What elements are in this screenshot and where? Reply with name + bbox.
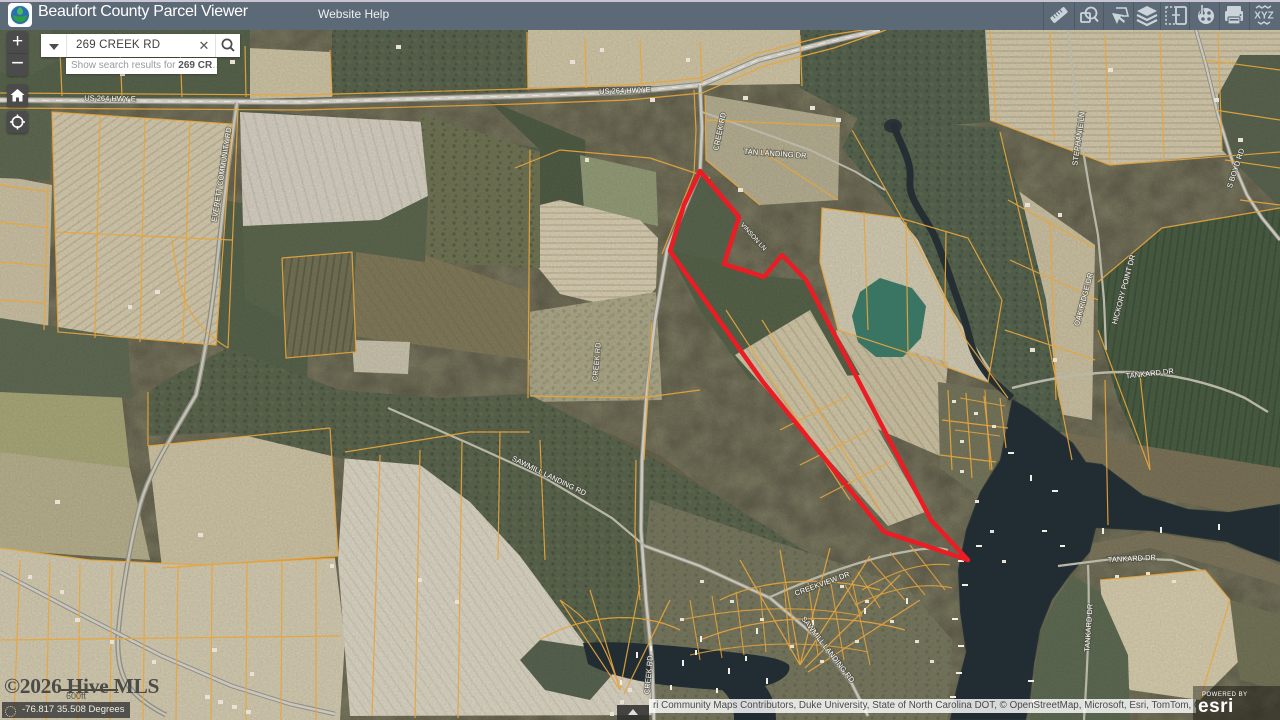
svg-text:US 264 HWY E: US 264 HWY E: [599, 85, 651, 96]
svg-text:XYZ: XYZ: [1254, 11, 1273, 22]
svg-text:US 264 HWY E: US 264 HWY E: [84, 94, 136, 104]
